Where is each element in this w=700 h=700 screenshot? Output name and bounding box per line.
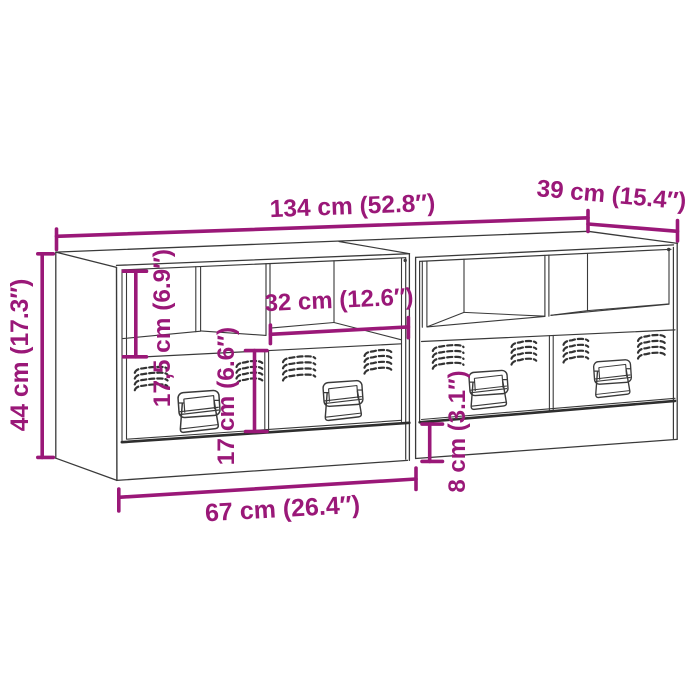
svg-text:32 cm (12.6″): 32 cm (12.6″)	[264, 283, 414, 317]
svg-text:17 cm (6.6″): 17 cm (6.6″)	[213, 327, 240, 465]
svg-text:39 cm (15.4″): 39 cm (15.4″)	[536, 175, 688, 215]
svg-text:8 cm (3.1″): 8 cm (3.1″)	[444, 370, 471, 492]
svg-text:67 cm (26.4″): 67 cm (26.4″)	[204, 491, 360, 528]
svg-text:17,5 cm (6.9″): 17,5 cm (6.9″)	[149, 249, 176, 407]
svg-text:44 cm (17.3″): 44 cm (17.3″)	[7, 279, 34, 432]
svg-text:134 cm (52.8″): 134 cm (52.8″)	[269, 190, 436, 223]
